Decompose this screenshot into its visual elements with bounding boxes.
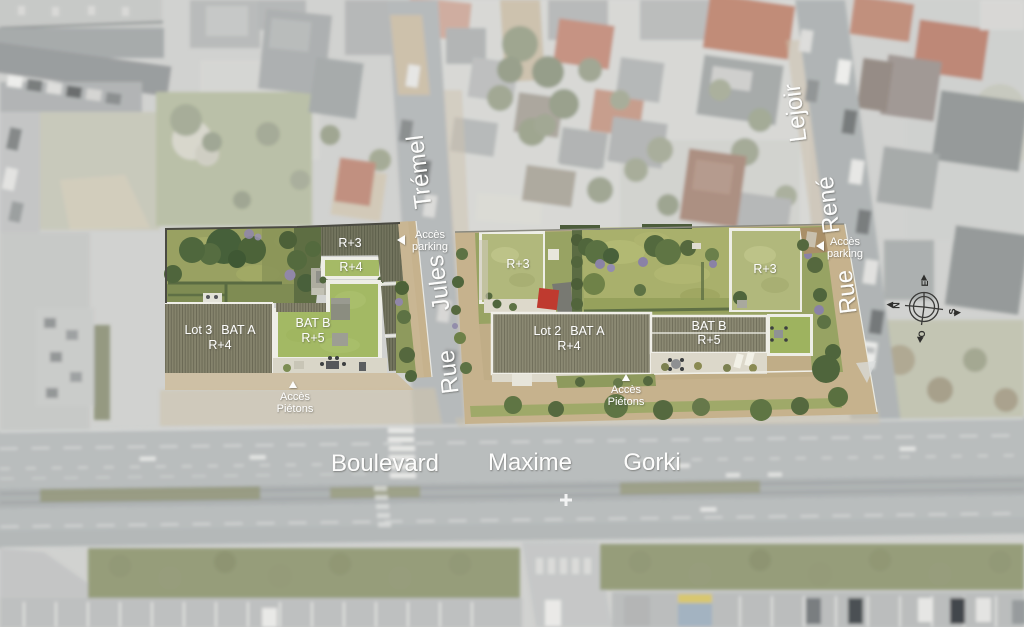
svg-text:Accès: Accès xyxy=(830,236,860,248)
svg-text:parking: parking xyxy=(827,248,863,260)
svg-text:R+4: R+4 xyxy=(208,338,231,352)
svg-text:Lot 2BAT A: Lot 2BAT A xyxy=(533,324,605,338)
svg-text:R+5: R+5 xyxy=(301,331,324,345)
svg-text:Rue: Rue xyxy=(432,348,464,395)
svg-text:Piétons: Piétons xyxy=(608,396,645,408)
svg-text:E: E xyxy=(920,280,930,286)
svg-text:Rue: Rue xyxy=(830,268,862,315)
svg-text:R+4: R+4 xyxy=(339,260,362,274)
svg-text:Piétons: Piétons xyxy=(277,403,314,415)
svg-text:R+3: R+3 xyxy=(753,262,776,276)
svg-text:Maxime: Maxime xyxy=(488,449,572,476)
svg-text:R+3: R+3 xyxy=(338,236,361,250)
svg-text:N: N xyxy=(892,302,902,309)
svg-text:R+3: R+3 xyxy=(506,257,529,271)
svg-text:O: O xyxy=(917,330,927,337)
svg-text:R+4: R+4 xyxy=(557,339,580,353)
svg-text:Accès: Accès xyxy=(280,391,310,403)
svg-text:Accès: Accès xyxy=(611,384,641,396)
svg-text:BAT B: BAT B xyxy=(692,319,727,333)
svg-text:Boulevard: Boulevard xyxy=(331,450,439,477)
svg-text:parking: parking xyxy=(412,241,448,253)
svg-text:S: S xyxy=(948,308,958,314)
svg-text:BAT B: BAT B xyxy=(296,316,331,330)
svg-text:Accès: Accès xyxy=(415,229,445,241)
svg-text:R+5: R+5 xyxy=(697,333,720,347)
svg-text:Lot 3BAT A: Lot 3BAT A xyxy=(184,323,256,337)
svg-text:Gorki: Gorki xyxy=(623,449,680,476)
